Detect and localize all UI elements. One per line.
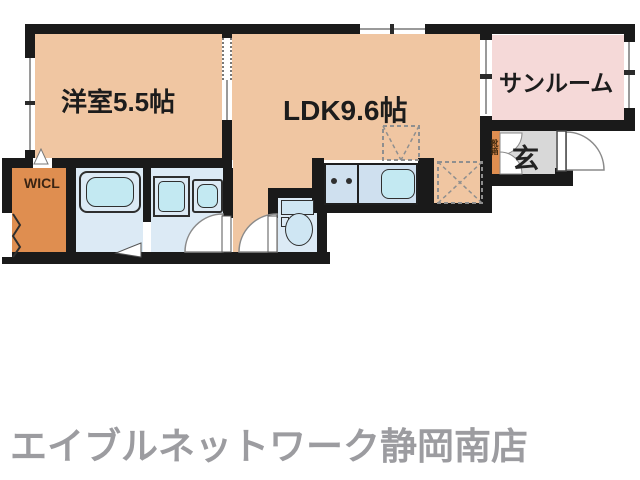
toilet-door-leaf bbox=[268, 216, 277, 252]
wicl-label: WICL bbox=[24, 175, 40, 191]
washer-space-outline bbox=[383, 126, 419, 160]
entrance-label: 玄 bbox=[512, 137, 539, 176]
agency-store-name: エイブルネットワーク静岡南店 bbox=[10, 416, 528, 470]
ldk-label: LDK9.6帖 bbox=[283, 89, 407, 129]
shoebox-label: 靴箱 bbox=[490, 139, 498, 155]
washer-space-diagonals bbox=[383, 126, 419, 160]
washroom-door-arc bbox=[185, 214, 223, 252]
refrigerator-space-diagonals bbox=[438, 162, 482, 203]
wicl-access-triangle bbox=[34, 149, 48, 164]
front-door-leaf bbox=[557, 131, 566, 171]
front-door-arc bbox=[566, 132, 604, 170]
washroom-door-leaf bbox=[222, 216, 231, 252]
floor-plan-image: 洋室5.5帖 LDK9.6帖 サンルーム 玄 WICL 靴箱 エイブルネットワー… bbox=[0, 0, 640, 480]
western-room-label: 洋室5.5帖 bbox=[61, 82, 175, 119]
sunroom-label: サンルーム bbox=[499, 64, 613, 98]
bathroom-door-triangle bbox=[116, 243, 141, 257]
wicl-folding-door-zigzag bbox=[13, 214, 20, 257]
